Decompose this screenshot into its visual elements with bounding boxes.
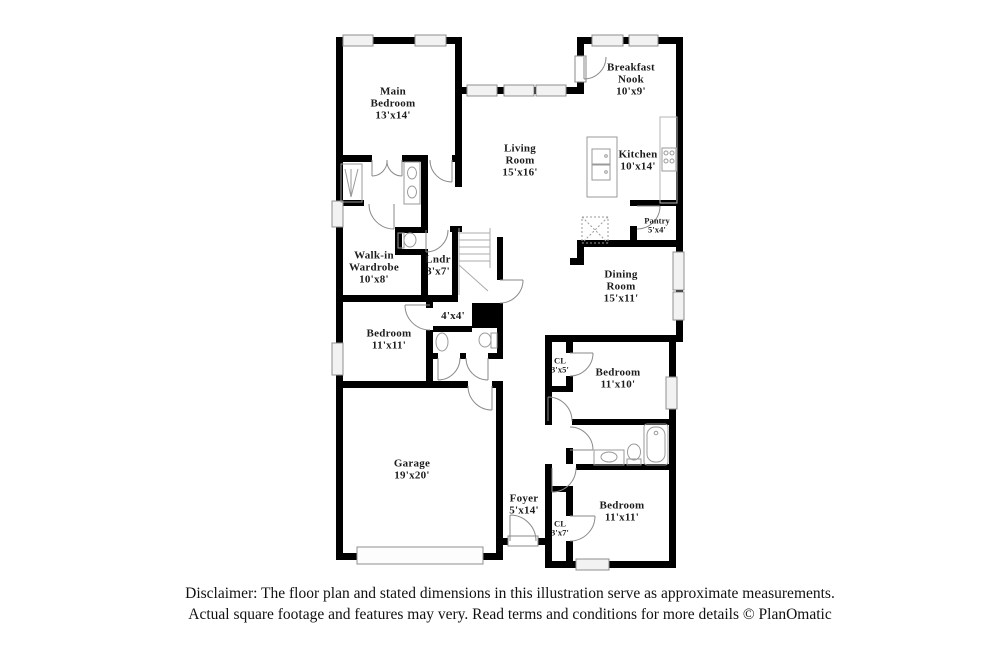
kitchen-counter bbox=[660, 117, 677, 203]
refrigerator-icon bbox=[582, 217, 608, 243]
disclaimer-line-1: Disclaimer: The floor plan and stated di… bbox=[0, 583, 1000, 604]
double-sink-icon bbox=[404, 162, 420, 204]
main-bedroom-door-arc bbox=[430, 160, 452, 182]
french-door-left-arc bbox=[372, 160, 387, 176]
bedroom-mid-door-arc bbox=[405, 305, 430, 330]
walls bbox=[336, 37, 683, 568]
windows bbox=[332, 35, 684, 570]
bathroom-door-arc bbox=[570, 427, 593, 450]
kitchen-island bbox=[587, 137, 617, 197]
window bbox=[576, 559, 609, 570]
stairs bbox=[459, 228, 490, 295]
closet-3x5-door-arc bbox=[570, 353, 593, 376]
french-door-right-arc bbox=[387, 160, 402, 176]
wardrobe-door-arc bbox=[369, 204, 394, 229]
window bbox=[536, 85, 566, 96]
window bbox=[673, 252, 684, 290]
front-door-leaf bbox=[508, 536, 538, 546]
disclaimer-text: Disclaimer: The floor plan and stated di… bbox=[0, 583, 1000, 625]
hall-bath-door-arc bbox=[438, 358, 460, 380]
garage-door bbox=[357, 547, 483, 564]
window bbox=[415, 35, 446, 46]
window bbox=[332, 343, 343, 375]
toilet-icon bbox=[627, 444, 641, 465]
window bbox=[332, 201, 343, 227]
window bbox=[673, 292, 684, 320]
pantry-door-arc bbox=[637, 206, 660, 229]
garage-entry-door-arc bbox=[468, 386, 492, 410]
window bbox=[592, 35, 623, 46]
fixtures bbox=[341, 117, 677, 465]
vanity-sink-icon bbox=[594, 450, 624, 465]
nook-door-arc bbox=[584, 57, 606, 79]
bathtub-icon bbox=[644, 424, 668, 465]
window bbox=[629, 35, 658, 46]
floor-plan bbox=[0, 0, 1000, 667]
toilet-icon bbox=[479, 333, 497, 348]
window bbox=[666, 377, 677, 409]
closet-3x7-door-arc bbox=[570, 516, 595, 541]
stair-hall-door-arc bbox=[500, 280, 523, 303]
chimney-block bbox=[472, 303, 500, 328]
window bbox=[467, 85, 497, 96]
window bbox=[504, 85, 534, 96]
disclaimer-line-2: Actual square footage and features may v… bbox=[0, 604, 1000, 625]
hall-door-arc bbox=[466, 358, 488, 380]
laundry-door-arc bbox=[426, 230, 448, 252]
shower-icon bbox=[341, 164, 362, 202]
pedestal-sink-icon bbox=[436, 333, 448, 351]
stove-icon bbox=[662, 148, 676, 171]
window bbox=[343, 35, 373, 46]
